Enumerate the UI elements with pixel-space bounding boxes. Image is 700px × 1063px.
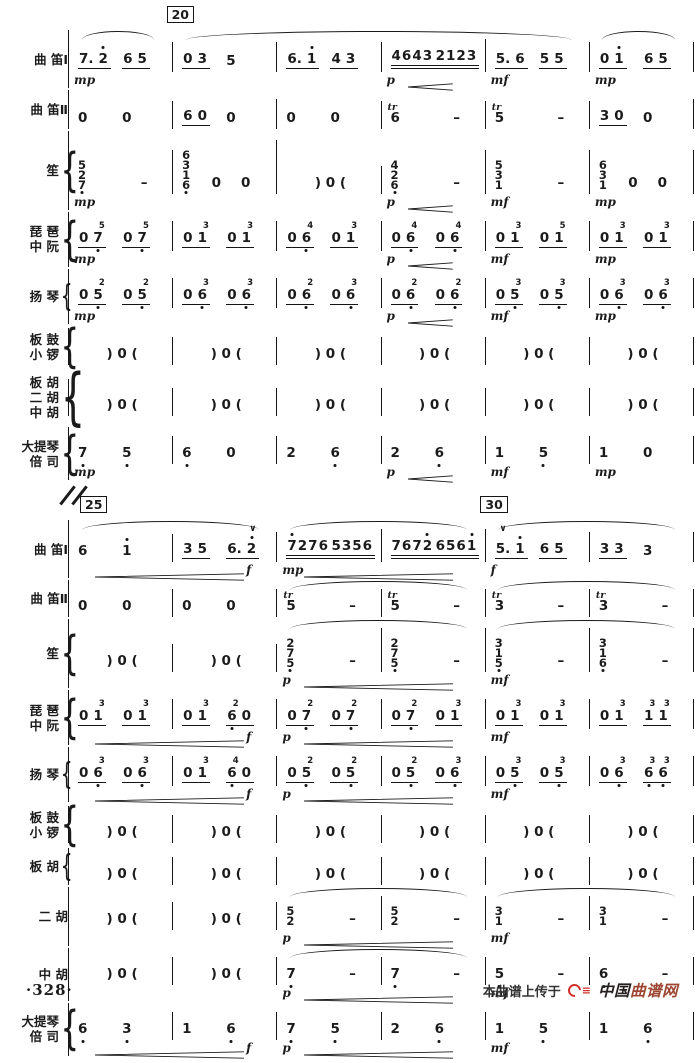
note-digit: 6 (614, 765, 623, 781)
dynamics-strip: mppmfmp (69, 196, 694, 210)
note: 2 (286, 446, 295, 461)
slur-strip (69, 848, 694, 857)
beat: 053 (495, 288, 539, 305)
octave-dot-below (230, 727, 233, 730)
beat: 013 (330, 231, 374, 248)
measure: 6.143 (277, 42, 381, 72)
beat: 35 (182, 542, 226, 559)
beam-group: 064 (286, 231, 314, 248)
instrument-label: 曲 笛Ⅰ (34, 542, 68, 557)
note: 52 (138, 288, 147, 303)
beat: ) 0 ( (391, 867, 479, 882)
staff-music: 61356.2∨72765356767265615.∨165333fmpf (68, 520, 694, 578)
grace-number: 3 (664, 757, 670, 765)
note-digit: ) 0 ( (419, 866, 450, 882)
note-digit: 0 (242, 765, 251, 781)
note-digit: ) 0 ( (523, 346, 554, 362)
note-digit: 1 (599, 445, 608, 461)
note-digit: – (349, 598, 356, 614)
measure: 61 (69, 534, 173, 562)
measure: ) 0 ( (173, 644, 277, 672)
note: 0 (212, 176, 221, 191)
note-digit: 6 (78, 1021, 87, 1037)
measure: 63 (69, 1012, 173, 1040)
slur (82, 521, 259, 530)
note-digit: 0 (123, 708, 132, 724)
note: ) 0 ( (107, 347, 138, 362)
chord-stack: 531 (495, 160, 503, 191)
measure: ) 0 ( (173, 388, 277, 416)
measure: 15 (486, 436, 590, 464)
note: 6 (402, 539, 411, 554)
slur (290, 521, 467, 530)
octave-dot-below (141, 784, 144, 787)
dynamics-strip: mppmfmp (69, 310, 694, 324)
note: 4 (392, 49, 401, 64)
note: 6 (330, 446, 339, 461)
note-digit: 2 (99, 51, 108, 67)
beat: 640 (226, 766, 270, 783)
beam-group: 013 (495, 709, 523, 726)
note-digit: 1 (138, 708, 147, 724)
measure: ) 0 ( (382, 337, 486, 365)
grace-number: 3 (620, 222, 626, 230)
note-digit: ) 0 ( (315, 824, 346, 840)
beat: 072 (391, 709, 435, 726)
note: 0 (658, 176, 667, 191)
measures-row: 61356.2∨72765356767265615.∨165333 (69, 529, 694, 562)
beam-group: 062 (286, 288, 314, 305)
measure: 46432123 (382, 39, 486, 72)
grace-number: 3 (203, 279, 209, 287)
measure: 075075 (69, 221, 173, 251)
beat: 5356 (330, 539, 374, 559)
measure: 600 (173, 99, 277, 129)
note: ) 0 ( (211, 398, 242, 413)
measure: 75 (69, 436, 173, 464)
note: 0 (540, 231, 549, 246)
note-digit: 0 (614, 108, 623, 124)
grace-number: 3 (620, 700, 626, 708)
note-digit: 7 (286, 1021, 295, 1037)
beat: 064 (286, 231, 330, 248)
note: 5 (554, 542, 563, 557)
note-digit: 6 (406, 230, 415, 246)
note: 13 (614, 709, 623, 724)
crescendo-hairpin (304, 1044, 453, 1053)
slur (498, 521, 675, 530)
staff-row: 大提琴倍 司{756026261510mppmfmp (2, 427, 694, 480)
note: ) 0 ( (419, 398, 450, 413)
note: 0 (198, 109, 207, 124)
instrument-label-column: 曲 笛Ⅰ (2, 542, 68, 557)
note: 64 (302, 231, 311, 246)
note-digit: 6 (450, 287, 459, 303)
note-digit: 6 (515, 51, 524, 67)
octave-dot-below (453, 249, 456, 252)
measure: 053053 (486, 756, 590, 786)
dynamic-marking: p (387, 310, 395, 322)
beat: 6 (78, 1022, 122, 1037)
slur (290, 888, 467, 897)
beat: 0 (212, 176, 241, 191)
measures-row: 631675261516 (69, 1012, 694, 1040)
staff-music: 0630630136400520520520630530530636363fpm… (68, 747, 694, 802)
instrument-label-line: 曲 笛Ⅰ (34, 542, 68, 557)
note-digit: 7 (138, 230, 147, 246)
note: 0 (287, 766, 296, 781)
note-digit: 0 (79, 765, 88, 781)
measures-row: ) 0 () 0 () 0 () 0 () 0 () 0 ( (69, 857, 694, 885)
note: 0 (287, 709, 296, 724)
note: ) 0 ( (627, 347, 658, 362)
staff-row: 笙{527–631600) 0 (426–531–63100mppmfmp (2, 131, 694, 210)
beat: 063 (599, 288, 643, 305)
note: ) 0 ( (315, 398, 346, 413)
note-digit: 0 (183, 287, 192, 303)
beat: – (435, 111, 479, 126)
beat: 013 (122, 709, 166, 726)
staff-music: 7.2650356.143464321235.6550165mppmfmp (68, 30, 694, 88)
beat: 0 (78, 599, 122, 614)
measure: 064064 (382, 221, 486, 251)
grace-number: 3 (620, 279, 626, 287)
note-digit: 0 (122, 110, 131, 126)
instrument-label-line: 板 鼓 (30, 810, 59, 825)
note: 13 (346, 231, 355, 246)
measure: 013640 (173, 756, 277, 786)
dynamics-strip: fpmf (69, 788, 694, 802)
note-digit: 0 (392, 765, 401, 781)
staff-music: 00005tr–5tr–3tr–3tr– (68, 580, 694, 617)
beam-group: 5.∨1 (495, 542, 528, 559)
note-digit: 0 (643, 110, 652, 126)
note-digit: 0 (600, 287, 609, 303)
chord-stack: 316 (599, 638, 607, 669)
octave-dot-below (662, 784, 665, 787)
note: ) 0 ( (211, 654, 242, 669)
note-digit: 0 (644, 287, 653, 303)
note: 13 (510, 231, 519, 246)
octave-dot-below (497, 669, 500, 672)
grace-number: 2 (411, 757, 417, 765)
dynamics-strip: pmf (69, 674, 694, 688)
note: – (453, 599, 460, 614)
watermark-text: 本曲谱上传于 (483, 981, 561, 1000)
instrument-label-column: 大提琴倍 司{ (2, 433, 68, 474)
note-digit: 6 (302, 287, 311, 303)
note-digit: 1 (467, 538, 476, 554)
instrument-label-line: 大提琴 (21, 1014, 59, 1029)
octave-dot-below (289, 669, 292, 672)
note-digit: 0 (600, 51, 609, 67)
measure: 26 (382, 1012, 486, 1040)
note-digit: 0 (122, 598, 131, 614)
note: ) 0 ( (315, 347, 346, 362)
octave-dot-below (647, 784, 650, 787)
staff-brace: { (61, 150, 67, 191)
beat: 31 (599, 906, 643, 927)
note: 0 (227, 231, 236, 246)
beat: 072 (286, 709, 330, 726)
beat: – (539, 599, 583, 614)
note: 0 (226, 446, 235, 461)
note: 5tr (495, 111, 504, 126)
beam-group: 063 (182, 288, 210, 305)
note: 1 (495, 1022, 504, 1037)
note-digit: 1 (242, 230, 251, 246)
beat: ) 0 ( (495, 825, 583, 840)
grace-number: 3 (351, 222, 357, 230)
note-digit: 0 (496, 287, 505, 303)
beam-group: 60 (182, 109, 210, 126)
measure: ) 0 ( (69, 857, 173, 885)
note: 52 (346, 766, 355, 781)
dynamic-marking: p (282, 731, 290, 743)
beam-group: 620 (226, 709, 254, 726)
beam-group: 013 (78, 709, 106, 726)
note: 6 (78, 544, 87, 559)
note-digit: 0 (123, 230, 132, 246)
measure: ) 0 ( (590, 815, 694, 843)
note: 0 (286, 111, 295, 126)
beat: ) 0 ( (182, 654, 270, 669)
dynamic-marking: mf (491, 932, 509, 944)
system-1: 20曲 笛Ⅰ7.2650356.143464321235.6550165mppm… (2, 4, 694, 480)
note-digit: 3 (467, 48, 476, 64)
instrument-label-line: 中 阮 (30, 239, 59, 254)
measure: ) 0 ( (382, 815, 486, 843)
beat: 65 (643, 52, 687, 69)
beam-group: 063 (599, 288, 627, 305)
instrument-label-column: 大提琴倍 司{ (2, 1008, 68, 1049)
note: 0 (392, 709, 401, 724)
grace-number: 5 (99, 222, 105, 230)
measure: 00 (173, 589, 277, 617)
beat: 063 (435, 766, 479, 783)
measures-row: 7.2650356.143464321235.6550165 (69, 39, 694, 72)
rehearsal-mark: 30 (480, 496, 507, 513)
instrument-label-line: 笙 (46, 163, 59, 178)
note-digit: 1 (554, 708, 563, 724)
staff-brace: { (61, 761, 67, 788)
note-digit: 3 (198, 51, 207, 67)
note-digit: 1 (495, 445, 504, 461)
note-digit: 6 (346, 287, 355, 303)
note-digit: 0 (286, 110, 295, 126)
beam-group: 7.2 (78, 52, 111, 69)
note-digit: 6 (406, 287, 415, 303)
measure: 013013 (590, 221, 694, 251)
octave-dot-below (141, 306, 144, 309)
slur (498, 581, 675, 590)
note: 6 (363, 539, 372, 554)
staff-row: 大提琴倍 司{631675261516fpmf (2, 1003, 694, 1056)
note-digit: 1 (93, 708, 102, 724)
measure: 26 (382, 436, 486, 464)
slur (290, 949, 467, 958)
chord-stack: 52 (391, 906, 399, 927)
note-digit: 0 (242, 708, 251, 724)
note-digit: 2 (423, 538, 432, 554)
grace-number: 2 (143, 279, 149, 287)
grace-number: 3 (560, 279, 566, 287)
note: 7. (79, 52, 94, 67)
chord-stack: 6316 (182, 150, 190, 191)
logo-arc-icon (565, 981, 583, 999)
note-digit: 6 (435, 1021, 444, 1037)
octave-dot-above (102, 46, 105, 49)
page-number: ·328· (26, 981, 73, 999)
note: 13 (198, 231, 207, 246)
measure: 072072 (277, 699, 381, 729)
beat: ) 0 ( (78, 912, 166, 927)
dynamic-marking: f (246, 788, 251, 800)
note-digit: 5 (510, 765, 519, 781)
grace-number: 5 (143, 222, 149, 230)
beat: 0 (643, 111, 687, 126)
measure: ) 0 ( (277, 166, 381, 194)
note: 62 (227, 709, 236, 724)
instrument-label-line: 倍 司 (21, 454, 59, 469)
beat: 0 (122, 111, 166, 126)
beat: 52 (286, 906, 330, 927)
beam-group: 053 (495, 766, 523, 783)
measure: 00 (277, 101, 381, 129)
note: 0 (392, 288, 401, 303)
measure: ) 0 ( (69, 644, 173, 672)
slur (82, 31, 155, 40)
instrument-label-column: 琵 琶中 阮{ (2, 697, 68, 738)
note-digit: 0 (227, 230, 236, 246)
beam-group: 30 (599, 109, 627, 126)
dynamic-marking: p (387, 253, 395, 265)
beam-group: 43 (330, 52, 358, 69)
note-digit: 7 (78, 445, 87, 461)
beat: ) 0 ( (78, 398, 166, 413)
beat: 062 (435, 288, 479, 305)
note: 13 (658, 709, 667, 724)
measure: 63100 (590, 150, 694, 194)
note-digit: 7 (392, 538, 401, 554)
beam-group: 013 (182, 231, 210, 248)
beat: 65 (539, 542, 583, 559)
beat: ) 0 ( (495, 867, 583, 882)
note: 0 (643, 446, 652, 461)
beam-group: 013 (330, 231, 358, 248)
staff-row: 曲 笛Ⅰ7.2650356.143464321235.6550165mppmfm… (2, 30, 694, 88)
note: 0 (79, 288, 88, 303)
beat: 064 (435, 231, 479, 248)
note: 5 (226, 54, 235, 69)
note-digit: 5 (346, 765, 355, 781)
beat: 053 (539, 288, 583, 305)
octave-dot-below (393, 669, 396, 672)
dynamics-strip: fpmf (69, 731, 694, 745)
measure: 0636363 (590, 756, 694, 786)
beam-group: 052 (391, 766, 419, 783)
measure: 16 (590, 1012, 694, 1040)
beam-group: 65 (122, 52, 150, 69)
note: 0 (436, 766, 445, 781)
note: 0 (628, 176, 637, 191)
note-digit: 5 (539, 1021, 548, 1037)
note-digit: 0 (600, 708, 609, 724)
note-digit: 1 (510, 230, 519, 246)
instrument-label-column: 板 胡{ (2, 853, 68, 880)
beat: ) 0 ( (286, 867, 374, 882)
measure: 013013 (173, 221, 277, 251)
measure: 063063 (590, 278, 694, 308)
note-digit: 5 (226, 53, 235, 69)
note-digit: 5 (138, 51, 147, 67)
dynamic-marking: mf (491, 466, 509, 478)
note: 1 (122, 544, 131, 559)
beat: 052 (78, 288, 122, 305)
beam-group: 640 (226, 766, 254, 783)
instrument-label-column: 曲 笛Ⅱ (2, 102, 68, 117)
beat: ) 0 ( (391, 825, 479, 840)
note: 53 (510, 766, 519, 781)
note: 53 (554, 766, 563, 781)
measure: ) 0 ( (173, 815, 277, 843)
chord-note: 1 (495, 180, 503, 190)
octave-dot-below (305, 727, 308, 730)
note: 0 (496, 766, 505, 781)
note-digit: ) 0 ( (523, 866, 554, 882)
measure: 275– (382, 628, 486, 672)
measure: ) 0 ( (69, 815, 173, 843)
note: – (557, 111, 564, 126)
grace-number: 4 (411, 222, 417, 230)
note: 5tr (391, 599, 400, 614)
note: 0 (183, 231, 192, 246)
beat: ) 0 ( (78, 825, 166, 840)
measure: 062063 (277, 278, 381, 308)
note-digit: 0 (540, 765, 549, 781)
note: 0 (226, 111, 235, 126)
chord-stack: 31 (599, 906, 607, 927)
dynamic-marking: p (282, 788, 290, 800)
note-digit: 2 (286, 445, 295, 461)
beat: 33 (599, 542, 643, 559)
note-digit: ) 0 ( (315, 346, 346, 362)
measure: ) 0 ( (173, 902, 277, 930)
note-digit: 2 (391, 445, 400, 461)
note: 1 (599, 446, 608, 461)
note-digit: 5 (554, 765, 563, 781)
beat: 6561 (435, 539, 479, 559)
staff-brace: { (61, 853, 67, 880)
beat: ) 0 ( (182, 398, 270, 413)
octave-dot-below (409, 784, 412, 787)
note: ) 0 ( (107, 654, 138, 669)
beat: 7 (286, 1022, 330, 1037)
note: 1 (515, 542, 524, 557)
beat: 3tr (495, 599, 539, 614)
beat: 0 (78, 111, 122, 126)
note-digit: 6 (402, 48, 411, 64)
measure: 3tr– (590, 589, 694, 617)
measure: 063063 (173, 278, 277, 308)
dynamic-marking: mf (491, 674, 509, 686)
note-digit: 4 (412, 48, 421, 64)
beam-group: 013 (182, 766, 210, 783)
octave-dot-below (513, 306, 516, 309)
note: – (662, 599, 669, 614)
note: 13 (242, 231, 251, 246)
crescendo-hairpin (304, 790, 453, 799)
